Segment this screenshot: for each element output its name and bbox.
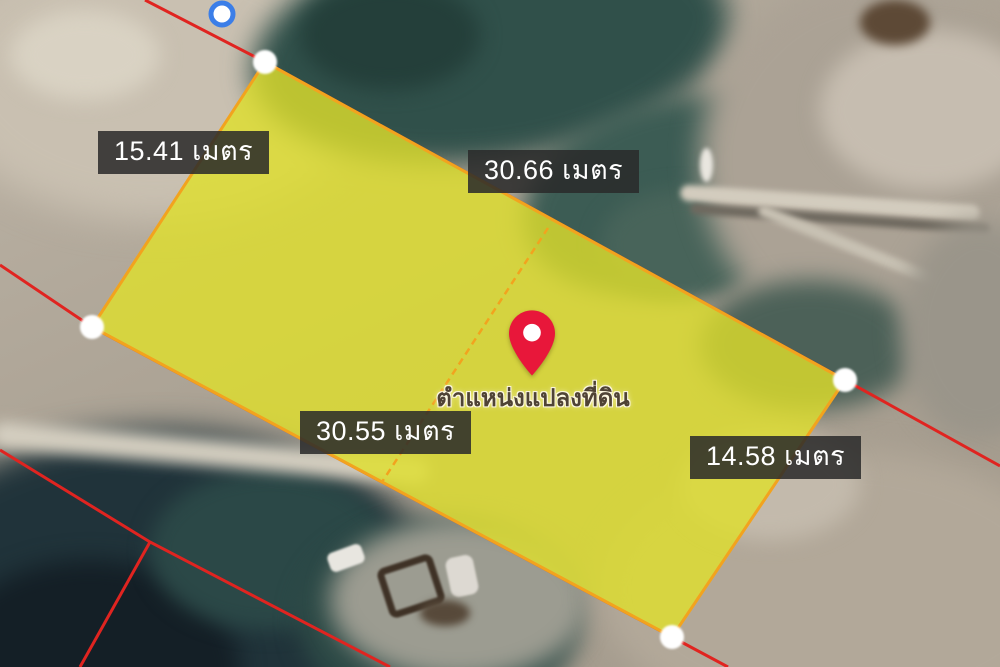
measurement-labels: 15.41 เมตร 30.66 เมตร 30.55 เมตร 14.58 เ… — [0, 0, 1000, 667]
measurement-label-bottom: 30.55 เมตร — [300, 411, 471, 454]
pin-caption: ตำแหน่งแปลงที่ดิน — [403, 378, 663, 417]
measurement-label-left: 15.41 เมตร — [98, 131, 269, 174]
satellite-map[interactable]: 15.41 เมตร 30.66 เมตร 30.55 เมตร 14.58 เ… — [0, 0, 1000, 667]
measurement-label-top: 30.66 เมตร — [468, 150, 639, 193]
location-pin-icon[interactable] — [509, 310, 555, 376]
measurement-label-right: 14.58 เมตร — [690, 436, 861, 479]
